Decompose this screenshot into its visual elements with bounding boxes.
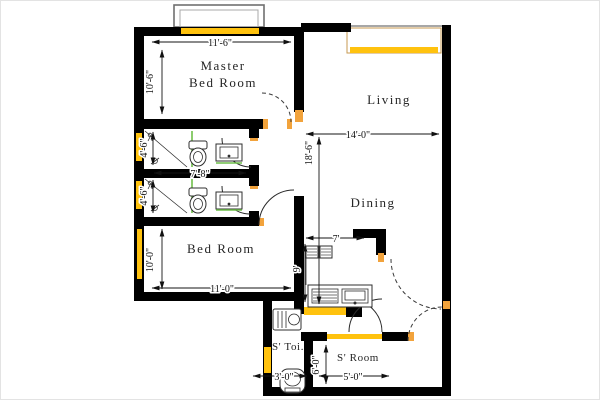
label-servant-room: S' Room [337, 352, 379, 364]
dim-master-width: 11'-6" [208, 38, 232, 49]
jamb-kitchen-passage [378, 253, 384, 262]
master-balcony [174, 5, 264, 27]
dim-living-dining-depth: 18'-6" [304, 141, 315, 165]
wall-sblock-top-a [301, 332, 327, 341]
label-bedroom: Bed Room [187, 241, 255, 256]
dim-sroom-depth: 6'-0" [311, 355, 322, 374]
toilet-icon [189, 141, 207, 166]
jamb-master-door-left [263, 119, 268, 129]
label-dining: Dining [350, 195, 395, 210]
label-master-bedroom-line2: Bed Room [189, 75, 257, 90]
master-door-arc [262, 93, 291, 122]
bedroom-door-arc [259, 190, 294, 225]
window-kitchen-bottom [304, 307, 346, 315]
label-living: Living [367, 92, 411, 107]
dim-stoi-width: 3'-0" [274, 372, 293, 383]
dim-toilet1-depth: 4'-6" [139, 138, 150, 157]
jamb-spine [295, 110, 303, 122]
washbasin-icon [216, 192, 242, 210]
wall-toilet-right-a [249, 129, 259, 138]
wall-kitchen-right [376, 229, 386, 255]
dim-toilet2-depth: 4'-6" [139, 186, 150, 205]
kitchen-sink-icon [308, 285, 372, 307]
wall-toilet-bottom [134, 217, 259, 226]
shower-icon [145, 179, 192, 213]
wall-spine-upper [294, 27, 304, 112]
dim-toilet2-width: 7'-8" [190, 169, 209, 180]
dim-kitchen-width: 7' [333, 234, 340, 245]
shower-icon [145, 131, 192, 167]
washing-machine-icon [273, 309, 301, 330]
floor-plan-canvas: 11'-6" 10'-6" 14'-0" 18'-6" 4'-6" 7'-8" … [0, 0, 600, 400]
dim-sroom-width: 5'-0" [343, 372, 362, 383]
jamb-right-wall [443, 301, 450, 309]
jamb-toilet2 [250, 186, 258, 189]
dim-kitchen-depth: 9' [292, 265, 303, 272]
window-master-top [181, 28, 259, 34]
dim-living-dining-width: 14'-0" [346, 130, 370, 141]
washbasin-icon [216, 144, 242, 163]
dim-bedroom-depth: 10'-0" [145, 248, 156, 272]
wall-master-bottom [134, 119, 263, 129]
wall-toilet-right-c [249, 211, 259, 226]
window-stoi-left [264, 347, 271, 373]
wall-sblock-top-b [382, 332, 410, 341]
jamb-toilet1 [250, 138, 258, 141]
label-servant-toilet: S' Toi. [272, 341, 304, 353]
toilet-icon [189, 188, 207, 213]
wall-living-top [301, 23, 351, 32]
wall-toilet-right-b [249, 165, 259, 186]
wall-right-outer [442, 25, 451, 396]
label-master-bedroom-line1: Master [200, 58, 245, 73]
window-living-balcony [350, 47, 438, 53]
passage-door-arc [391, 259, 441, 309]
window-bedroom-left [137, 229, 142, 279]
dim-master-depth: 10'-6" [145, 70, 156, 94]
window-sroom-top [327, 334, 382, 339]
floor-plan-drawing: 11'-6" 10'-6" 14'-0" 18'-6" 4'-6" 7'-8" … [1, 1, 600, 400]
dim-bedroom-width: 11'-0" [210, 284, 234, 295]
wall-kitchen-bottom [346, 307, 362, 317]
